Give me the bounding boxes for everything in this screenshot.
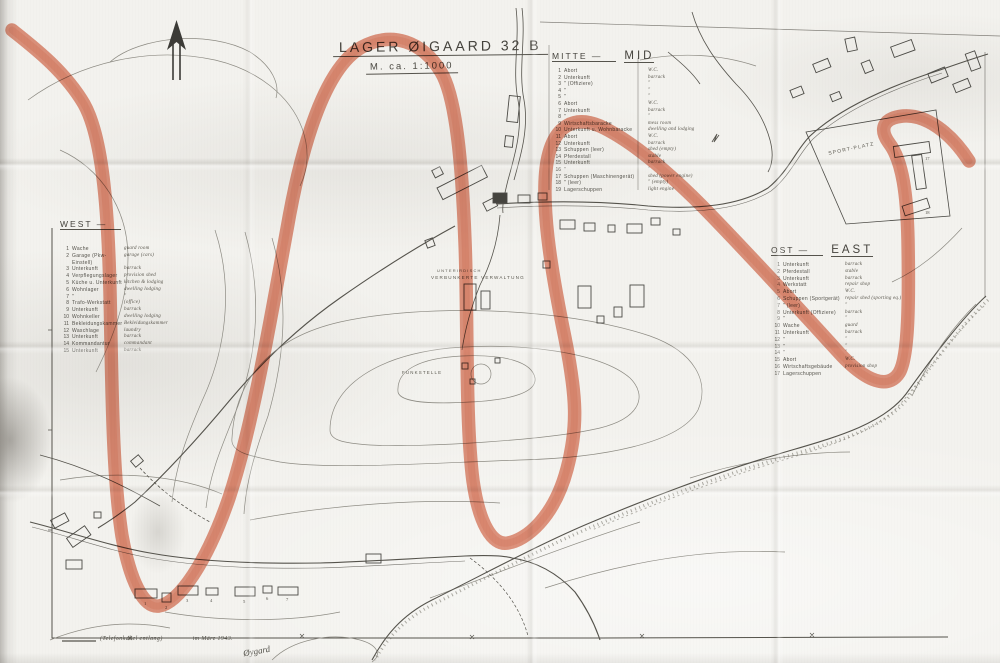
red-marker-scribble xyxy=(0,0,1000,663)
scanned-map-sheet: 1 2 3 4 5 6 7 17 18 LAGER ØIGAARD 32 B M… xyxy=(0,0,1000,663)
